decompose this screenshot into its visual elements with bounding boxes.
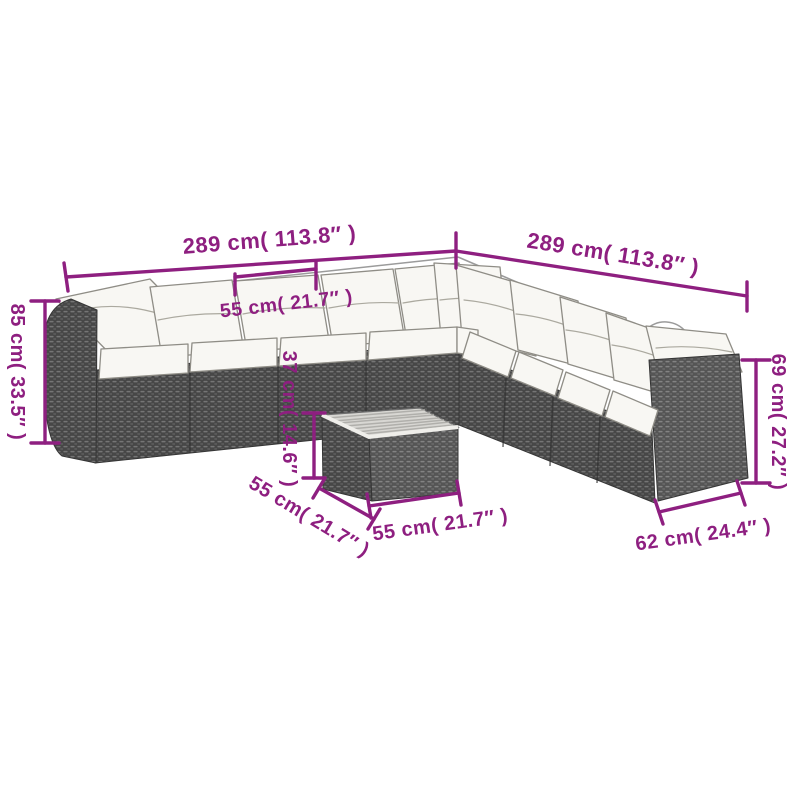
dim-height-right-label: 69 cm( 27.2″ ) <box>767 354 789 491</box>
dim-height-left-label: 85 cm( 33.5″ ) <box>6 304 28 441</box>
dim-serif <box>64 263 68 291</box>
coffee-table <box>322 408 458 501</box>
seat-cushion <box>99 344 188 379</box>
product-dimension-illustration: 289 cm( 113.8″ ) 289 cm( 113.8″ ) 55 cm(… <box>0 0 800 800</box>
dim-back-width-right-label: 289 cm( 113.8″ ) <box>525 228 701 280</box>
dim-seat-depth-right-label: 62 cm( 24.4″ ) <box>634 515 772 556</box>
dim-serif <box>457 481 461 505</box>
seat-cushion <box>190 338 277 372</box>
dim-back-width-left-label: 289 cm( 113.8″ ) <box>182 220 357 259</box>
armrest-right <box>649 354 748 501</box>
armrest-left <box>44 299 97 463</box>
dim-table-height-label: 37 cm( 14.6″ ) <box>278 351 300 488</box>
product-dimension-image: 289 cm( 113.8″ ) 289 cm( 113.8″ ) 55 cm(… <box>0 0 800 800</box>
table-body-right <box>369 427 458 501</box>
dim-table-width-label: 55 cm( 21.7″ ) <box>371 505 509 546</box>
